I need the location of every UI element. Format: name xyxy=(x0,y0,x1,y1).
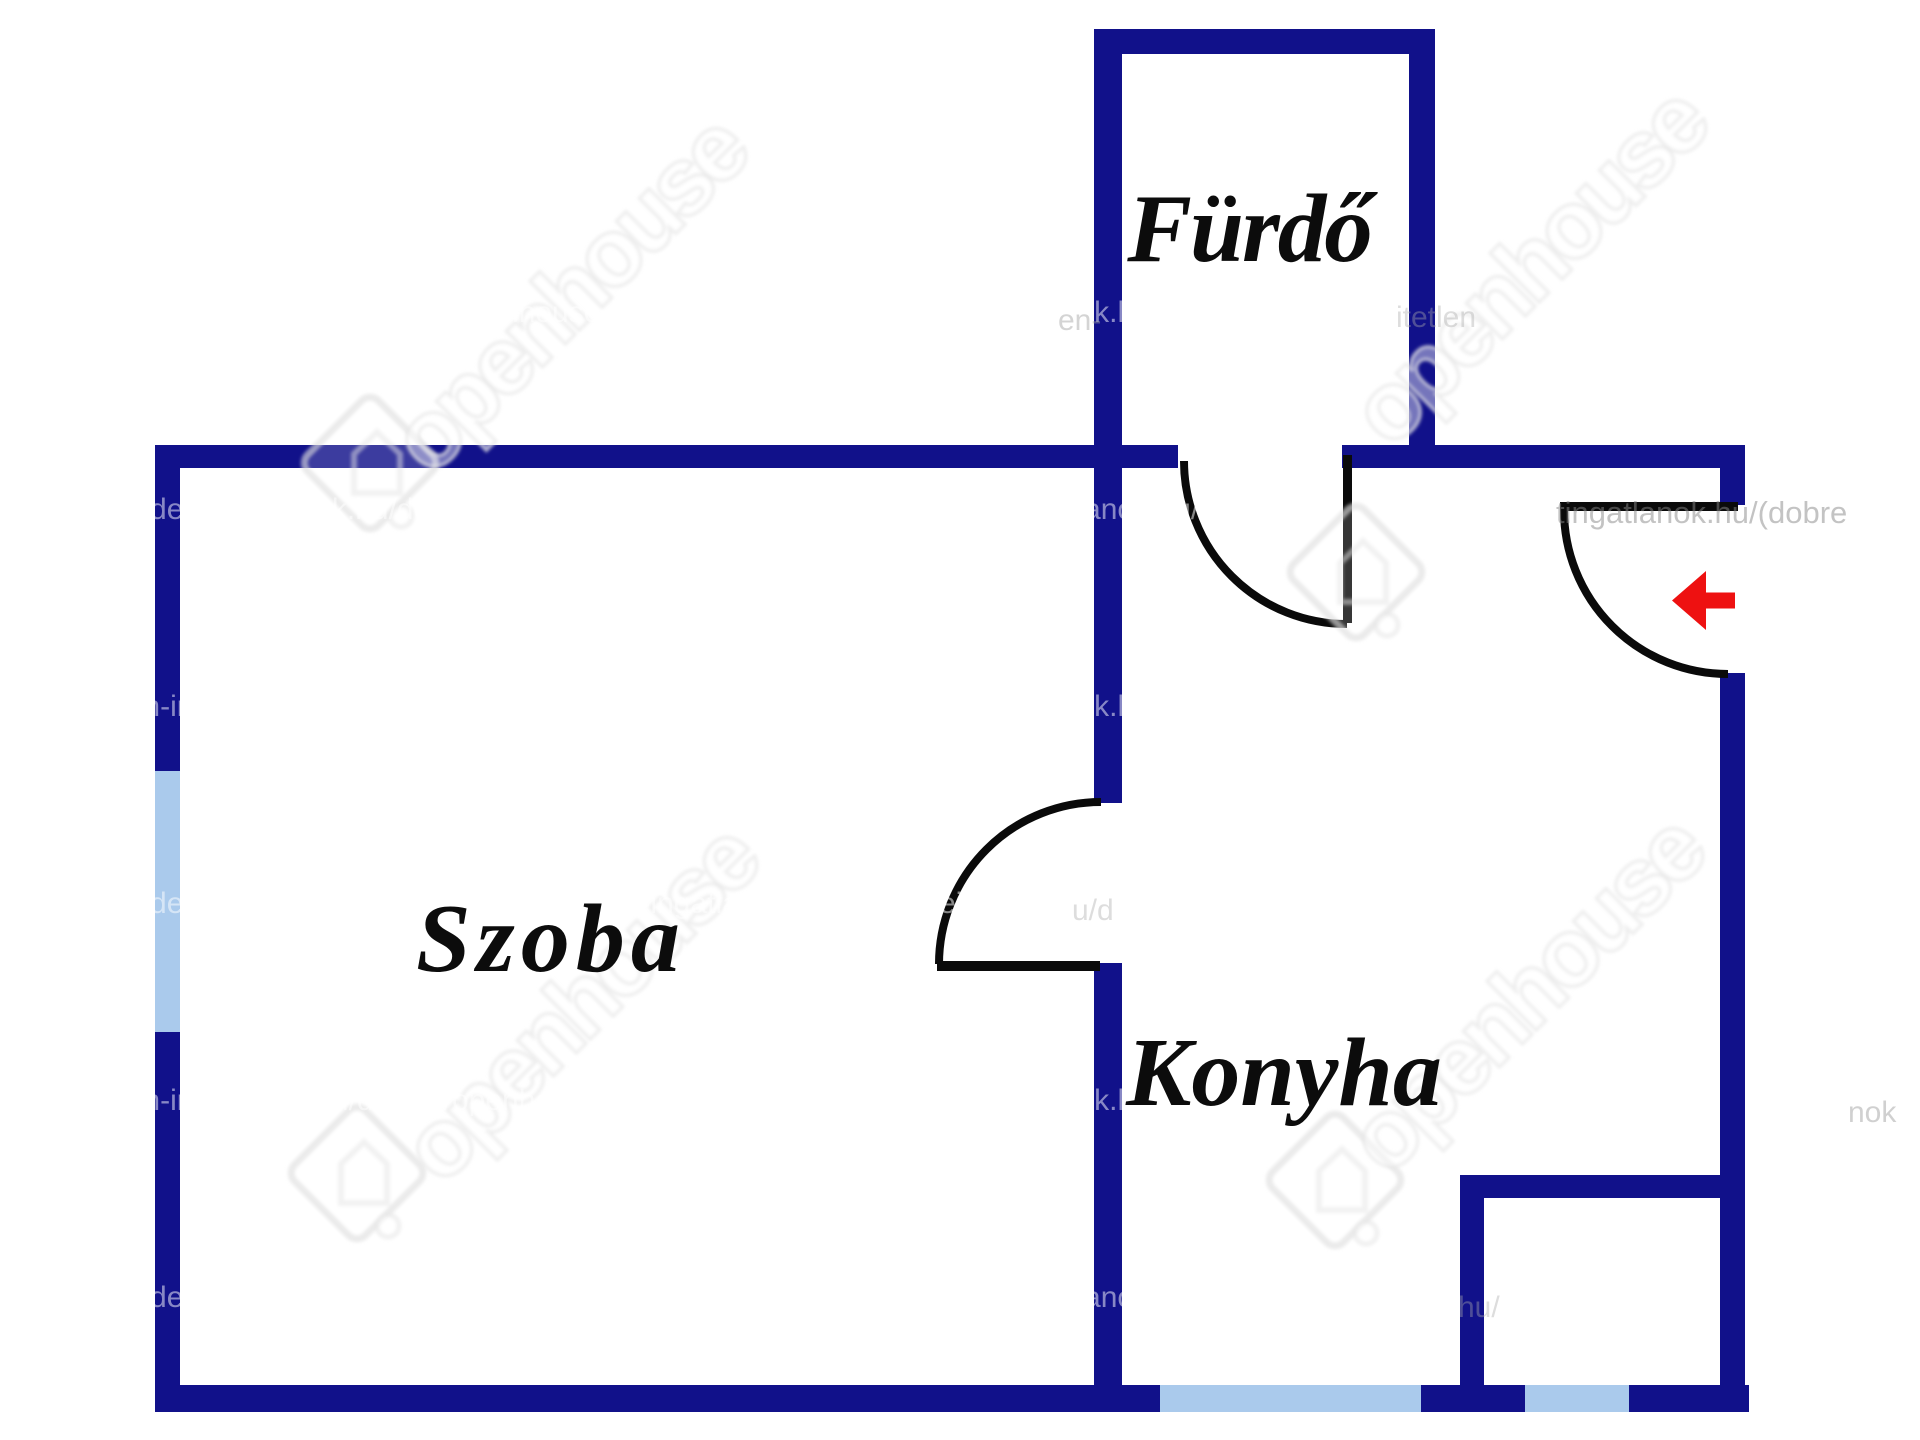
svg-text:Szoba: Szoba xyxy=(416,885,686,993)
svg-text:hu/: hu/ xyxy=(1458,1291,1500,1324)
svg-text:en-: en- xyxy=(1058,304,1101,337)
svg-text:nok: nok xyxy=(1848,1096,1897,1129)
svg-text:https://den-ingatlanok.hu/deta: https://den-ingatlanok.hu/details/openho… xyxy=(60,1281,1286,1314)
svg-text:Konyha: Konyha xyxy=(1125,1019,1442,1127)
svg-text:u/d: u/d xyxy=(1072,894,1114,927)
svg-text:https://den-ingatlanok.hu/deta: https://den-ingatlanok.hu/details/openho… xyxy=(60,493,1286,526)
svg-text:Fürdő: Fürdő xyxy=(1126,175,1378,282)
svg-text:https://den-ingatlanok.hu/deta: https://den-ingatlanok.hu/details/openho… xyxy=(20,1084,1246,1117)
svg-text:itetlen: itetlen xyxy=(1396,301,1476,334)
svg-text:tingatlanok.hu/(dobre: tingatlanok.hu/(dobre xyxy=(1556,495,1847,530)
svg-text:https://den-ingatlanok.hu/deta: https://den-ingatlanok.hu/details/openho… xyxy=(20,690,1246,723)
